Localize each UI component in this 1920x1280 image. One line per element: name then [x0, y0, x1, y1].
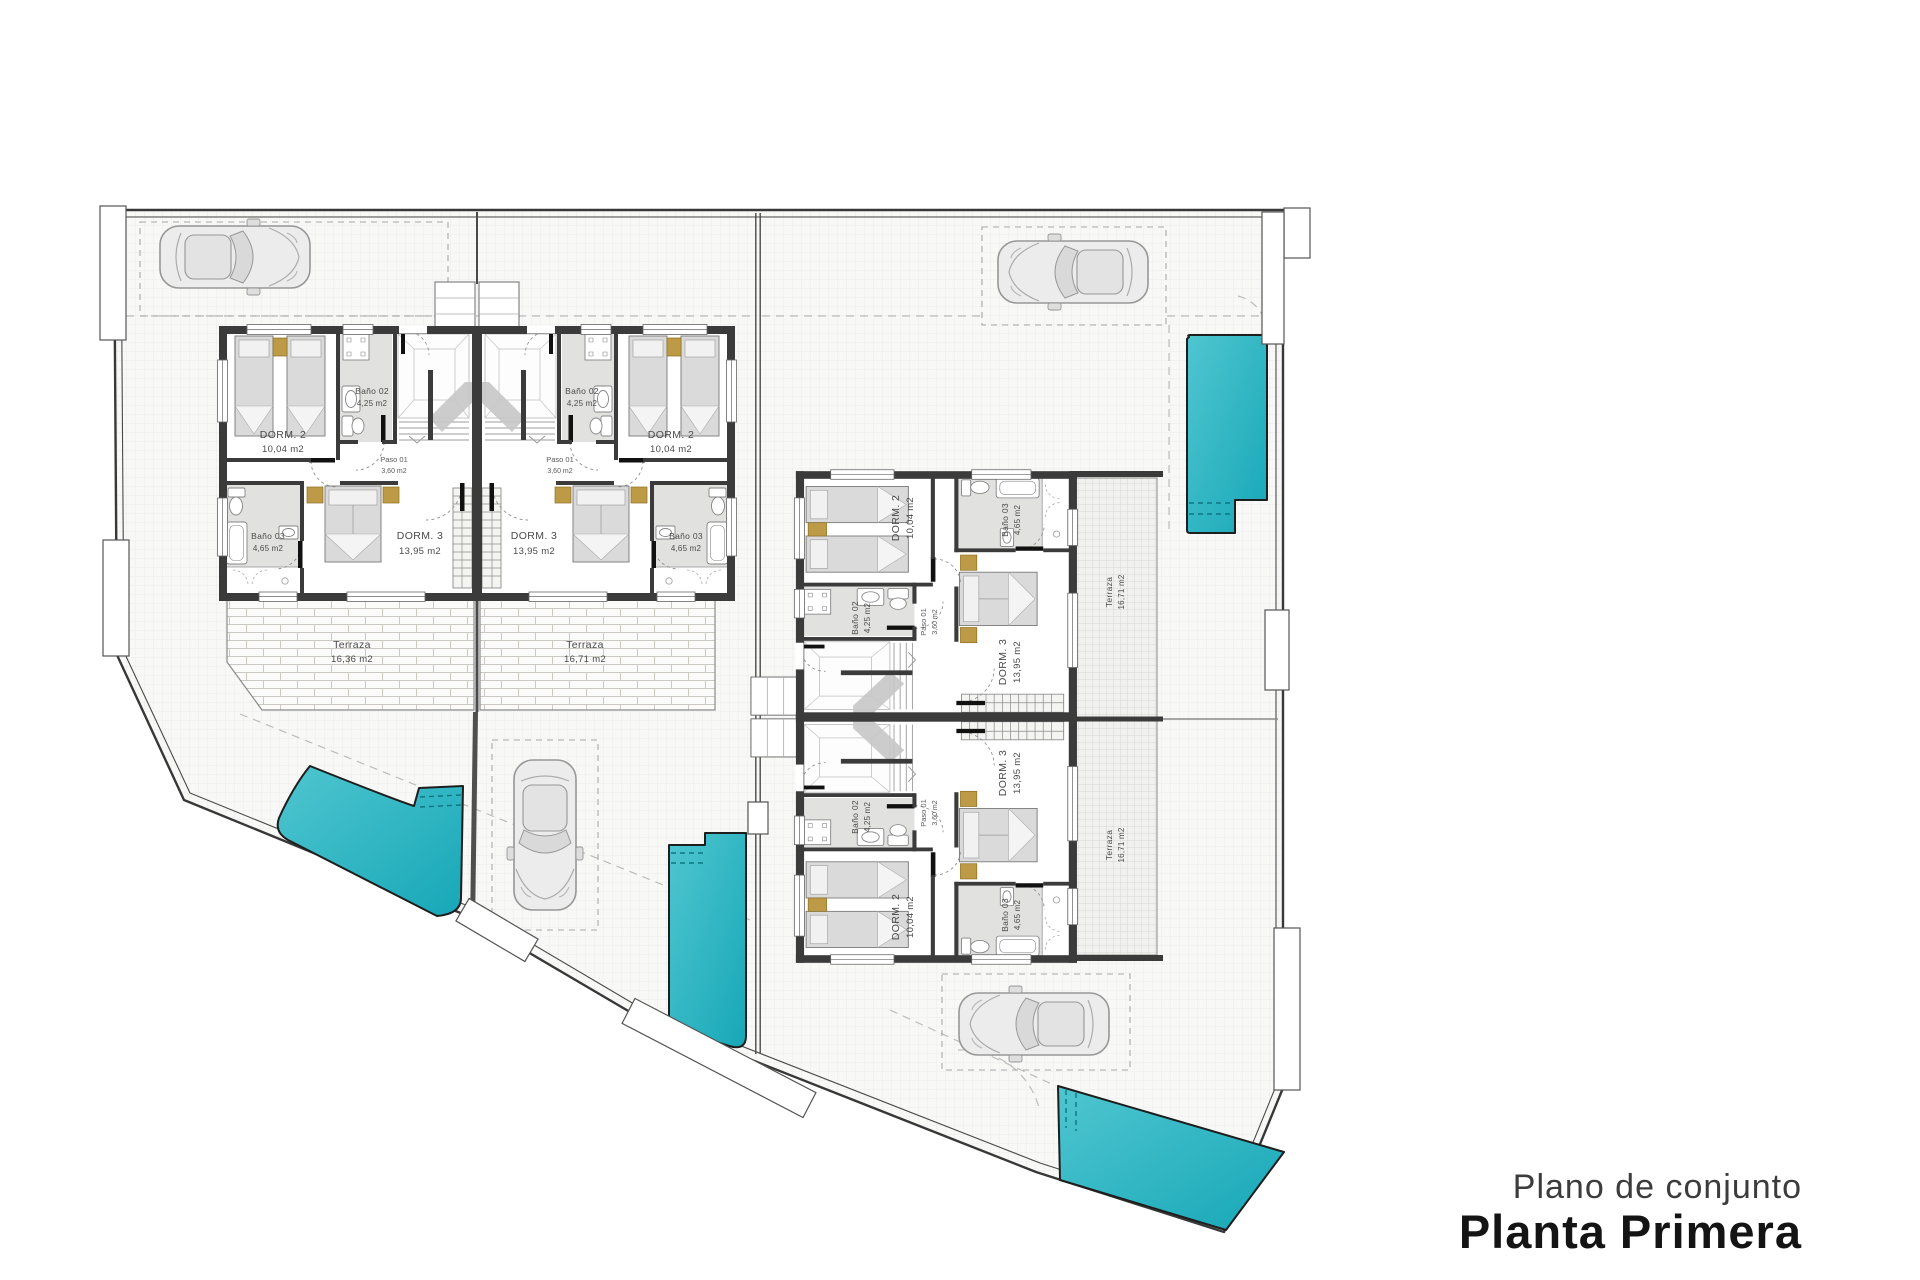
- room-label: 4,65 m2: [671, 544, 702, 553]
- plan-title: Planta Primera: [1459, 1205, 1802, 1258]
- room-label: 3,60 m2: [547, 468, 572, 475]
- car-bottom: [959, 986, 1109, 1062]
- room-label: DORM. 2: [890, 894, 902, 941]
- floor-plan-canvas: DORM. 2 10,04 m2 Baño 02 4,25 m2 Paso 01…: [0, 0, 1920, 1280]
- plan-subtitle: Plano de conjunto: [1513, 1168, 1802, 1206]
- room-label: 13,95 m2: [1012, 752, 1023, 794]
- terrace-label: 16,36 m2: [331, 654, 373, 665]
- room-label: Baño 03: [669, 531, 703, 541]
- room-label: DORM. 2: [890, 495, 902, 542]
- room-label: DORM. 2: [260, 429, 307, 441]
- window-bar: [1262, 212, 1284, 344]
- room-label: 4,25 m2: [357, 399, 388, 408]
- title-block: Plano de conjunto Planta Primera: [1459, 1168, 1802, 1258]
- left-building: [218, 282, 737, 602]
- room-label: 10,04 m2: [905, 497, 916, 539]
- window-bar: [1265, 610, 1289, 690]
- room-label: 13,95 m2: [399, 546, 441, 557]
- terrace-label: Terraza: [333, 639, 371, 651]
- room-label: Paso 01: [380, 455, 408, 464]
- room-label: 4,25 m2: [863, 801, 872, 832]
- window-bar: [100, 206, 126, 340]
- divider-gate: [748, 802, 768, 834]
- terrace-label: Terraza: [1104, 577, 1114, 607]
- room-label: Paso 01: [919, 608, 928, 636]
- room-label: Baño 03: [1000, 898, 1010, 932]
- room-label: 3,60 m2: [932, 800, 939, 825]
- room-label: 10,04 m2: [262, 444, 304, 455]
- terrace-label: 16,71 m2: [1117, 827, 1126, 862]
- room-label: Baño 03: [251, 531, 285, 541]
- right-building: [751, 470, 1078, 964]
- room-label: 4,65 m2: [253, 544, 284, 553]
- room-label: 13,95 m2: [513, 546, 555, 557]
- car-top-right: [998, 234, 1148, 310]
- window-bar: [103, 540, 129, 656]
- room-label: 3,60 m2: [381, 468, 406, 475]
- room-label: Paso 01: [546, 455, 574, 464]
- car-top-left: [160, 219, 310, 295]
- room-label: 4,25 m2: [863, 602, 872, 633]
- room-label: 3,60 m2: [932, 609, 939, 634]
- room-label: Baño 02: [565, 386, 599, 396]
- car-center: [507, 760, 583, 910]
- room-label: DORM. 3: [997, 750, 1009, 797]
- terrace-label: 16,71 m2: [1117, 574, 1126, 609]
- terrace-label: Terraza: [1104, 830, 1114, 860]
- floor-plan-page: DORM. 2 10,04 m2 Baño 02 4,25 m2 Paso 01…: [0, 0, 1920, 1280]
- window-bar: [1274, 928, 1300, 1090]
- room-label: 10,04 m2: [650, 444, 692, 455]
- pool-center: [669, 833, 746, 1047]
- room-label: DORM. 2: [648, 429, 695, 441]
- room-label: 4,25 m2: [567, 399, 598, 408]
- room-label: DORM. 3: [511, 530, 558, 542]
- terrace-right-building: [1071, 471, 1163, 961]
- room-label: Baño 02: [850, 601, 860, 635]
- room-label: 10,04 m2: [905, 896, 916, 938]
- room-label: 4,65 m2: [1013, 899, 1022, 930]
- room-label: 4,65 m2: [1013, 504, 1022, 535]
- room-label: Paso 01: [919, 799, 928, 827]
- terrace-label: Terraza: [566, 639, 604, 651]
- room-label: DORM. 3: [397, 530, 444, 542]
- room-label: 13,95 m2: [1012, 641, 1023, 683]
- terrace-left-building: [227, 599, 715, 710]
- terrace-label: 16,71 m2: [564, 654, 606, 665]
- room-label: DORM. 3: [997, 639, 1009, 686]
- room-label: Baño 03: [1000, 503, 1010, 537]
- room-label: Baño 02: [355, 386, 389, 396]
- window-bar: [1284, 208, 1310, 258]
- room-label: Baño 02: [850, 800, 860, 834]
